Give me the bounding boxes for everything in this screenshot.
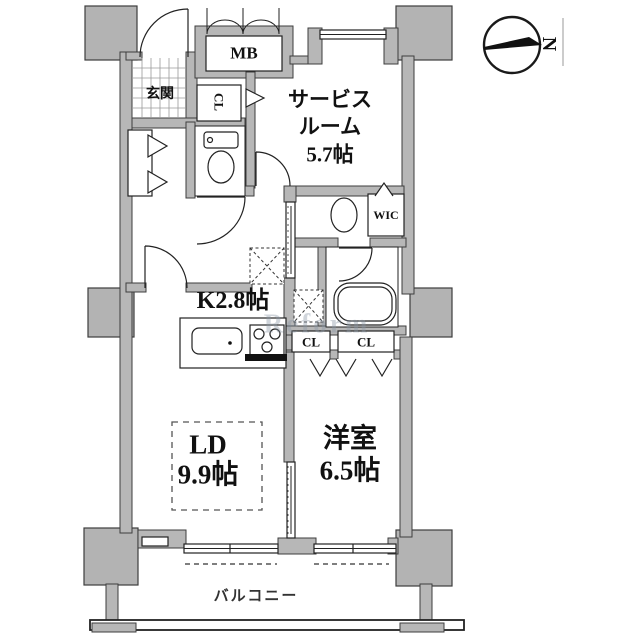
service-room-label-line1: サービス — [288, 90, 372, 111]
living-dining-label: LD — [189, 432, 227, 459]
washbasin-icon — [331, 198, 357, 232]
refrigerator-space-icon — [250, 248, 284, 284]
meter-box-label: MB — [230, 45, 257, 62]
living-dining-area-label: 9.9帖 — [178, 462, 239, 489]
hall-closet-label: CL — [213, 93, 226, 111]
balcony-label: バルコニー — [214, 590, 299, 605]
floorplan-canvas: MB 玄関 CL サービス ルーム 5.7帖 WIC K2.8帖 CL CL L… — [0, 0, 640, 640]
balcony-railing — [90, 620, 464, 632]
sink-icon — [192, 328, 242, 354]
western-room-area-label: 6.5帖 — [320, 458, 381, 485]
entrance-label: 玄関 — [146, 88, 174, 102]
service-room-area-label: 5.7帖 — [306, 145, 353, 166]
western-room-label: 洋室 — [323, 426, 377, 453]
service-room-label-line2: ルーム — [299, 117, 361, 138]
watermark-text: Reform — [264, 311, 370, 338]
compass-north-label: N — [539, 37, 559, 51]
kitchen-label: K2.8帖 — [197, 289, 270, 313]
wic-label: WIC — [373, 209, 398, 221]
